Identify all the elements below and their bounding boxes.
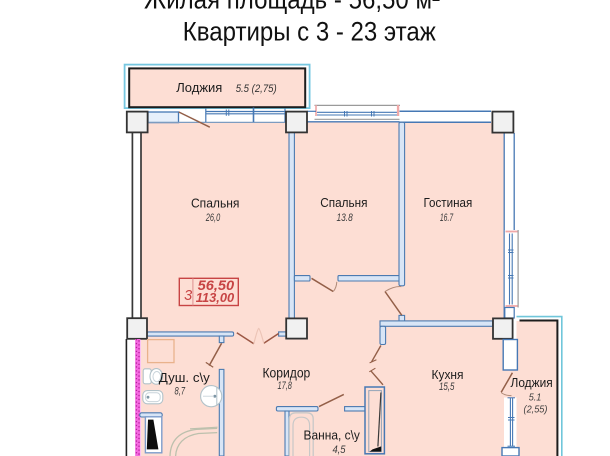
svg-text:Жилая площадь - 56,50 м²: Жилая площадь - 56,50 м² [144,0,440,15]
svg-text:Спальня: Спальня [320,195,367,210]
svg-text:Душ. с\у: Душ. с\у [159,370,210,385]
svg-text:26,0: 26,0 [205,212,221,224]
svg-text:Гостиная: Гостиная [424,195,473,210]
svg-text:13.8: 13.8 [336,212,353,224]
svg-text:Лоджия: Лоджия [511,376,553,390]
svg-text:17,8: 17,8 [277,380,292,392]
svg-text:Спальня: Спальня [191,195,240,210]
svg-text:(2,55): (2,55) [524,403,548,415]
svg-text:16.7: 16.7 [440,212,454,224]
svg-text:8,7: 8,7 [175,386,186,398]
svg-text:5.5 (2,75): 5.5 (2,75) [236,83,277,95]
svg-text:113,00: 113,00 [196,290,235,305]
svg-text:Ванна, с\у: Ванна, с\у [304,428,361,443]
svg-text:Лоджия: Лоджия [176,80,222,95]
svg-text:4,5: 4,5 [332,444,346,456]
svg-text:15,5: 15,5 [439,381,455,393]
svg-text:3: 3 [184,288,192,304]
svg-text:Коридор: Коридор [263,366,311,381]
svg-text:5.1: 5.1 [529,392,542,404]
svg-text:Квартиры с 3 - 23 этаж: Квартиры с 3 - 23 этаж [183,17,436,47]
